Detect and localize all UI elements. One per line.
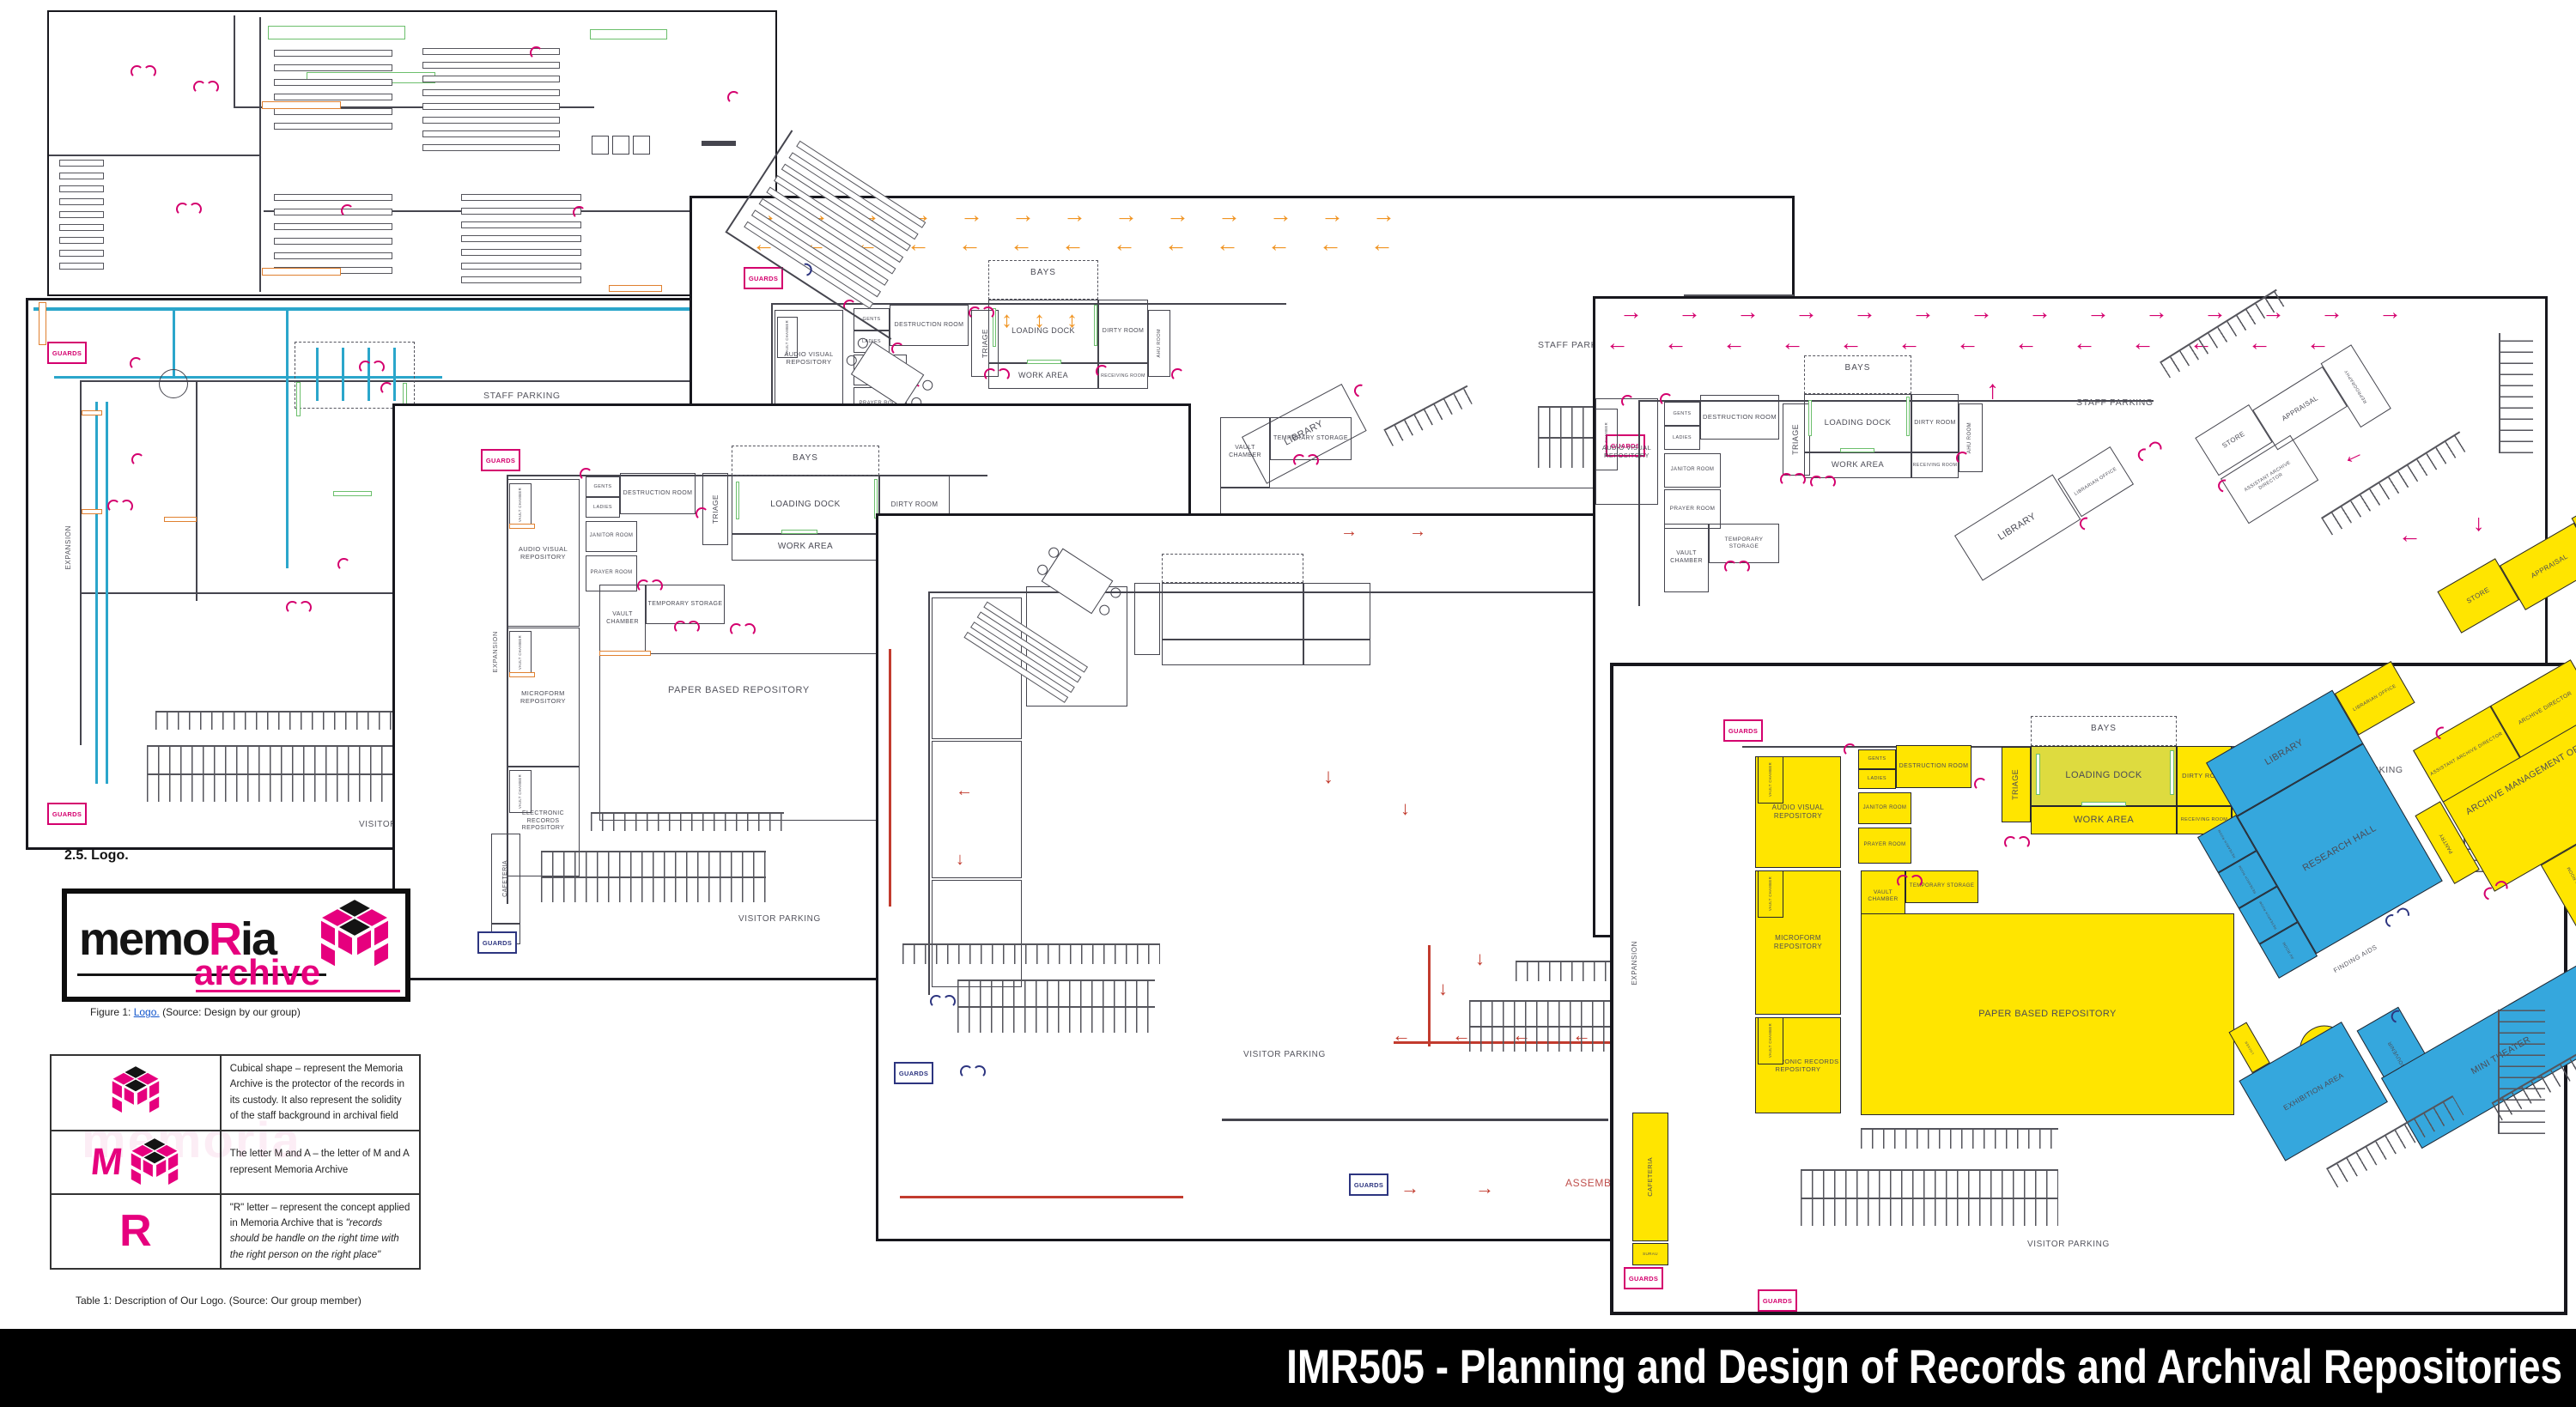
room-label: LIBRARIAN OFFICE bbox=[2074, 466, 2118, 497]
room-ahu-room: AHU ROOM bbox=[1148, 310, 1170, 377]
shelving-unit bbox=[461, 263, 581, 270]
room-label: AHU ROOM bbox=[1157, 329, 1163, 357]
shelving-unit bbox=[422, 117, 560, 124]
evacuation-arrow-icon: → bbox=[1372, 203, 1395, 227]
evacuation-arrow-icon: ← bbox=[1722, 331, 1746, 355]
parking-row bbox=[155, 711, 430, 730]
room-loading-dock: LOADING DOCK bbox=[1804, 394, 1911, 452]
door-icon bbox=[286, 601, 299, 614]
shelving-unit bbox=[59, 185, 104, 192]
wall-line bbox=[49, 155, 260, 156]
wall-line bbox=[106, 402, 108, 784]
room-label: DIRTY ROOM bbox=[891, 500, 939, 509]
dock-leveler bbox=[1808, 400, 1812, 436]
evacuation-arrow-icon: ← bbox=[1956, 331, 1979, 355]
room-label: SURAU bbox=[1643, 1252, 1658, 1257]
door-icon bbox=[131, 453, 144, 466]
evacuation-arrow-icon: → bbox=[1321, 203, 1344, 227]
text-expansion: EXPANSION bbox=[491, 631, 499, 673]
evacuation-arrow-icon: ← bbox=[1267, 233, 1291, 256]
evacuation-arrow-icon: → bbox=[1853, 300, 1876, 324]
room-label: APPRAISAL bbox=[2281, 394, 2320, 423]
room-janitor-room: JANITOR ROOM bbox=[1664, 453, 1721, 488]
evacuation-arrow-icon: → bbox=[1619, 300, 1643, 324]
door-icon bbox=[573, 206, 586, 219]
evacuation-arrow-icon: ← bbox=[956, 782, 973, 799]
door-icon bbox=[337, 558, 350, 571]
door-icon bbox=[930, 995, 943, 1008]
logo-archive-word: archive bbox=[194, 952, 320, 993]
room-label: PRAYER ROOM bbox=[1670, 506, 1716, 512]
ma-letters-icon: M bbox=[51, 1131, 221, 1194]
room-label: LIBRARY bbox=[1283, 419, 1326, 449]
door-icon bbox=[943, 995, 956, 1008]
shelving-unit bbox=[274, 50, 392, 57]
evacuation-arrow-icon: ↓ bbox=[956, 851, 964, 868]
room-label: VAULT CHAMBER bbox=[1768, 1023, 1772, 1058]
room-destruction-room: DESTRUCTION ROOM bbox=[1896, 745, 1971, 788]
room-label: ASSISTANT ARCHIVE DIRECTOR bbox=[2233, 453, 2307, 506]
room-label: TEMPORARY STORAGE bbox=[1710, 537, 1778, 550]
wall-line bbox=[928, 591, 930, 995]
door-icon bbox=[1171, 368, 1184, 381]
room-vault-chamber: VAULT CHAMBER bbox=[509, 483, 532, 526]
room-gents: GENTS bbox=[1664, 402, 1700, 426]
room-label: JANITOR ROOM bbox=[1671, 467, 1715, 474]
shelving-unit bbox=[274, 238, 392, 245]
room-label: VAULT CHAMBER bbox=[1604, 422, 1608, 457]
dock-leveler bbox=[736, 482, 739, 519]
room-gents: GENTS bbox=[586, 476, 620, 497]
room-unlabeled bbox=[1303, 583, 1370, 640]
table-caption: Table 1: Description of Our Logo. (Sourc… bbox=[76, 1295, 361, 1307]
room-cafeteria: CAFETERIA bbox=[1632, 1113, 1668, 1241]
dock-leveler bbox=[1094, 305, 1097, 346]
door-icon bbox=[727, 91, 740, 104]
room-surau: SURAU bbox=[1632, 1243, 1668, 1265]
wall-line bbox=[316, 348, 319, 401]
guards-post: GUARDS bbox=[894, 1062, 933, 1084]
room-label: DISCUSSION ROOM bbox=[2566, 865, 2576, 908]
room-unlabeled bbox=[932, 741, 1022, 878]
room-label: VAULT CHAMBER bbox=[600, 611, 645, 627]
dock-leveler bbox=[2036, 754, 2040, 795]
dock-leveler bbox=[333, 491, 372, 496]
door-icon bbox=[189, 203, 202, 215]
shelving-unit bbox=[59, 250, 104, 257]
room-label: VAULT CHAMBER bbox=[1768, 762, 1772, 797]
guards-post: GUARDS bbox=[1349, 1174, 1388, 1196]
door-icon bbox=[107, 500, 120, 512]
room-label: VAULT CHAMBER bbox=[1862, 889, 1905, 903]
wall-line bbox=[234, 15, 235, 106]
door-icon bbox=[1844, 743, 1856, 756]
evacuation-arrow-icon: → bbox=[1409, 523, 1426, 540]
evacuation-arrow-icon: ← bbox=[1319, 233, 1342, 256]
evacuation-arrow-icon: ↓ bbox=[2473, 512, 2485, 535]
text-visitor-parking: VISITOR PARKING bbox=[738, 914, 821, 924]
evacuation-arrow-icon: ↓ bbox=[1323, 767, 1334, 787]
room-label: JANITOR ROOM bbox=[590, 533, 634, 540]
door-icon bbox=[1352, 382, 1369, 399]
door-icon bbox=[674, 621, 687, 634]
table-row: R"R" letter – represent the concept appl… bbox=[51, 1194, 420, 1270]
parking-row bbox=[902, 943, 1160, 964]
room-destruction-room: DESTRUCTION ROOM bbox=[620, 473, 696, 514]
room-ladies: LADIES bbox=[1858, 769, 1896, 789]
cube-icon bbox=[51, 1055, 221, 1131]
shelving-unit bbox=[59, 237, 104, 244]
door-icon bbox=[2004, 836, 2017, 849]
room-label: REPROGRAPHY bbox=[2343, 368, 2368, 403]
evacuation-arrow-icon: → bbox=[2379, 300, 2402, 324]
room-label: VAULT CHAMBER bbox=[1768, 876, 1772, 911]
room-label: LIBRARY bbox=[2263, 737, 2306, 769]
chair-icon bbox=[1097, 603, 1112, 617]
room-work-area: WORK AREA bbox=[2031, 806, 2177, 834]
door-icon bbox=[131, 65, 143, 78]
text-finding-aids: FINDING AIDS bbox=[2332, 943, 2379, 974]
roller-shutter bbox=[39, 302, 46, 345]
evacuation-arrow-icon: → bbox=[1678, 300, 1701, 324]
wall-line bbox=[702, 141, 736, 146]
room-label: AUDIO VISUAL REPOSITORY bbox=[1756, 804, 1840, 821]
evacuation-arrow-icon: ← bbox=[1664, 331, 1687, 355]
wall-line bbox=[173, 309, 175, 378]
evacuation-arrow-icon: ← bbox=[1164, 233, 1188, 256]
shelving-unit bbox=[422, 62, 560, 69]
shelving-unit bbox=[422, 130, 560, 137]
section-heading: 2.5. Logo. bbox=[64, 848, 129, 864]
room-dirty-room: DIRTY ROOM bbox=[1098, 300, 1148, 363]
room-label: GENTS bbox=[1674, 411, 1692, 417]
sheet-zoned-floor-plan-color: GUARDSEXPANSIONAUDIO VISUAL REPOSITORYVA… bbox=[1610, 663, 2567, 1315]
bays-dashed-area: BAYS bbox=[2031, 716, 2177, 746]
room-temporary-storage: TEMPORARY STORAGE bbox=[1709, 524, 1779, 563]
door-icon bbox=[130, 357, 143, 370]
evacuation-arrow-icon: ← bbox=[2014, 331, 2038, 355]
door-icon bbox=[359, 361, 372, 373]
room-label: APPRAISAL bbox=[2530, 553, 2570, 581]
course-title: IMR505 - Planning and Design of Records … bbox=[1286, 1337, 2562, 1393]
shelving-unit bbox=[59, 160, 104, 167]
room-label: RESEARCH HALL bbox=[2300, 822, 2379, 874]
logo-link[interactable]: Logo. bbox=[134, 1006, 160, 1018]
parking-row bbox=[957, 979, 1155, 1033]
figure-caption: Figure 1: Logo. (Source: Design by our g… bbox=[90, 1006, 301, 1018]
evacuation-arrow-icon: → bbox=[960, 203, 983, 227]
room-label: LOADING DOCK bbox=[2065, 770, 2142, 782]
room-janitor-room: JANITOR ROOM bbox=[1858, 792, 1911, 824]
room-unlabeled bbox=[1303, 640, 1370, 665]
evacuation-arrow-icon: → bbox=[1340, 523, 1358, 540]
door-icon bbox=[143, 65, 156, 78]
evacuation-arrow-icon: → bbox=[2087, 300, 2110, 324]
shelving-unit bbox=[274, 108, 392, 115]
work-table bbox=[590, 29, 667, 39]
guards-post: GUARDS bbox=[1624, 1267, 1663, 1289]
room-label: LOCKER bbox=[2244, 1040, 2254, 1055]
dock-leveler bbox=[2081, 802, 2126, 806]
door-icon bbox=[1793, 473, 1806, 486]
room-label: DIRTY ROOM bbox=[1103, 328, 1144, 336]
evacuation-arrow-icon: ← bbox=[1606, 331, 1629, 355]
evacuation-arrow-icon: → bbox=[1911, 300, 1935, 324]
door-icon bbox=[193, 81, 206, 94]
evacuation-arrow-icon: ← bbox=[1781, 331, 1804, 355]
shelving-unit bbox=[59, 173, 104, 179]
room-label: STORE bbox=[2465, 585, 2491, 605]
cube-icon bbox=[318, 897, 392, 971]
guards-post: GUARDS bbox=[481, 449, 520, 471]
room-label: WORK AREA bbox=[778, 542, 833, 553]
m-letter: M bbox=[88, 1141, 125, 1184]
shelving-unit bbox=[461, 276, 581, 283]
shelving-unit bbox=[274, 194, 392, 201]
room-label: RESEARCH ROOM bbox=[2238, 864, 2257, 895]
room-unlabeled bbox=[592, 136, 609, 155]
door-icon bbox=[176, 203, 189, 215]
room-vault-chamber: VAULT CHAMBER bbox=[1758, 1017, 1783, 1064]
roller-shutter bbox=[262, 101, 341, 109]
bays-label: BAYS bbox=[1030, 268, 1056, 277]
work-table bbox=[268, 26, 405, 39]
room-receiving-room: RECEIVING ROOM bbox=[1911, 452, 1959, 478]
text-staff-parking: STAFF PARKING bbox=[483, 391, 561, 401]
parking-row bbox=[1861, 1128, 2058, 1149]
logo-description-text: The letter M and A – the letter of M and… bbox=[221, 1131, 420, 1194]
room-paper-based-repository: PAPER BASED REPOSITORY bbox=[1861, 913, 2234, 1115]
evacuation-arrow-icon: ← bbox=[1216, 233, 1239, 256]
roller-shutter bbox=[509, 672, 535, 677]
room-cafeteria: CAFETERIA bbox=[491, 834, 520, 924]
door-icon bbox=[730, 623, 743, 636]
shelving-unit bbox=[422, 144, 560, 151]
room-label: LOADING DOCK bbox=[1825, 418, 1892, 428]
door-icon bbox=[1780, 473, 1793, 486]
room-vault-chamber: VAULT CHAMBER bbox=[1664, 524, 1709, 592]
evacuation-arrow-icon: ↓ bbox=[1475, 949, 1485, 968]
dock-leveler bbox=[296, 382, 301, 416]
room-label: CAFETERIA bbox=[1646, 1157, 1654, 1197]
room-label: VAULT CHAMBER bbox=[518, 635, 522, 670]
door-icon bbox=[696, 507, 708, 520]
bays-dashed-area: BAYS bbox=[1804, 355, 1911, 394]
room-ladies: LADIES bbox=[1664, 426, 1700, 450]
door-icon bbox=[687, 621, 700, 634]
room-label: LIBRARY bbox=[1996, 512, 2038, 544]
room-vault-chamber: VAULT CHAMBER bbox=[599, 585, 646, 653]
shelving-unit bbox=[274, 252, 392, 259]
evacuation-arrow-icon: ↓ bbox=[1438, 979, 1448, 998]
room-label: DIRTY ROOM bbox=[1914, 420, 1955, 428]
roller-shutter bbox=[164, 517, 197, 522]
evacuation-arrow-icon: ← bbox=[2131, 331, 2154, 355]
room-vault-chamber: VAULT CHAMBER bbox=[509, 631, 532, 674]
evacuation-arrow-icon: → bbox=[1269, 203, 1292, 227]
evacuation-arrow-icon: ← bbox=[1061, 233, 1084, 256]
wall-line bbox=[286, 311, 289, 568]
room-label: PRAYER ROOM bbox=[1864, 842, 1906, 849]
shelving-unit bbox=[59, 263, 104, 270]
room-triage: TRIAGE bbox=[2002, 747, 2031, 822]
room-label: TEMPORARY STORAGE bbox=[648, 601, 723, 609]
parking-row bbox=[1801, 1169, 2058, 1226]
room-label: VAULT CHAMBER bbox=[518, 774, 522, 809]
r-letter-icon: R bbox=[51, 1194, 221, 1270]
evacuation-arrow-icon: → bbox=[1475, 1179, 1494, 1198]
wall-line bbox=[900, 1196, 1183, 1198]
logo-description-text: "R" letter – represent the concept appli… bbox=[221, 1194, 420, 1270]
bays-label: BAYS bbox=[2091, 724, 2117, 733]
door-icon bbox=[299, 601, 312, 614]
wall-line bbox=[393, 348, 396, 401]
room-library: LIBRARY bbox=[1242, 384, 1367, 484]
room-label: RECEIVING ROOM bbox=[1913, 463, 1958, 469]
logo-description-text: Cubical shape – represent the Memoria Ar… bbox=[221, 1055, 420, 1131]
parking-row bbox=[541, 851, 766, 902]
dock-leveler bbox=[1840, 448, 1874, 452]
shelving-unit bbox=[59, 224, 104, 231]
shelving-unit bbox=[274, 94, 392, 100]
room-label: MICROFORM REPOSITORY bbox=[1756, 934, 1840, 951]
room-label: AHU ROOM bbox=[1967, 422, 1974, 453]
room-vault-chamber: VAULT CHAMBER bbox=[1758, 870, 1783, 918]
shelving-unit bbox=[461, 249, 581, 256]
memoria-archive-logo: memoRia archive bbox=[62, 888, 410, 1002]
text-expansion: EXPANSION bbox=[1631, 941, 1638, 986]
room-label: LADIES bbox=[593, 505, 612, 511]
evacuation-arrow-icon: → bbox=[1218, 203, 1241, 227]
room-label: VAULT CHAMBER bbox=[1665, 550, 1708, 566]
evacuation-arrow-icon: → bbox=[1795, 300, 1818, 324]
guards-post: GUARDS bbox=[47, 342, 87, 364]
evacuation-arrow-icon: → bbox=[1166, 203, 1189, 227]
room-label: TRIAGE bbox=[711, 494, 720, 524]
roller-shutter bbox=[262, 268, 341, 276]
roller-shutter bbox=[82, 509, 102, 514]
text-visitor-parking: VISITOR PARKING bbox=[2027, 1240, 2110, 1249]
guards-post: GUARDS bbox=[477, 931, 517, 954]
door-icon bbox=[120, 500, 133, 512]
door-icon bbox=[1660, 393, 1673, 406]
parking-row bbox=[2499, 333, 2533, 453]
room-prayer-room: PRAYER ROOM bbox=[1858, 828, 1911, 864]
guards-post: GUARDS bbox=[1758, 1289, 1797, 1312]
bays-dashed-area bbox=[295, 342, 415, 409]
cube-icon bbox=[129, 1137, 180, 1188]
evacuation-arrow-icon: → bbox=[2028, 300, 2051, 324]
room-label: PRAYER ROOM bbox=[591, 570, 633, 577]
bays-label: BAYS bbox=[793, 453, 818, 463]
evacuation-arrow-icon: → bbox=[1063, 203, 1086, 227]
room-work-area: WORK AREA bbox=[732, 534, 879, 561]
room-library: LIBRARY bbox=[1954, 474, 2081, 580]
bays-dashed-area: BAYS bbox=[732, 446, 879, 476]
shelving-unit bbox=[274, 79, 392, 86]
door-icon bbox=[1621, 395, 1634, 408]
room-dirty-room: DIRTY ROOM bbox=[1911, 394, 1959, 452]
room-label: GENTS bbox=[594, 484, 612, 490]
room-label: RESEARCH ROOM bbox=[2258, 901, 2278, 931]
screenshot-canvas: GUARDSGUARDSEXPANSIONSTAFF PARKINGVISITO… bbox=[0, 0, 2576, 1407]
room-label: RESEARCH ROOM bbox=[2217, 829, 2237, 859]
parking-row bbox=[147, 745, 430, 802]
room-label: PAPER BASED REPOSITORY bbox=[1978, 1009, 2116, 1021]
sheet-furnishing-plan bbox=[47, 10, 777, 296]
wall-line bbox=[1222, 1119, 1608, 1121]
evacuation-arrow-icon: ← bbox=[1839, 331, 1862, 355]
room-vault-chamber: VAULT CHAMBER bbox=[1758, 756, 1783, 804]
room-label: LADIES bbox=[1673, 435, 1692, 441]
evacuation-arrow-icon: ← bbox=[1010, 233, 1033, 256]
logo-underline-pink bbox=[196, 990, 400, 992]
door-icon bbox=[1910, 875, 1923, 888]
shelving-unit bbox=[59, 211, 104, 218]
bays-label: BAYS bbox=[1845, 363, 1871, 373]
bays-dashed-area bbox=[1162, 554, 1303, 583]
evacuation-arrow-icon: → bbox=[1400, 1179, 1419, 1198]
door-icon bbox=[1823, 476, 1836, 488]
evacuation-arrow-icon: → bbox=[2203, 300, 2227, 324]
door-icon bbox=[960, 1065, 973, 1078]
shelving-unit bbox=[422, 103, 560, 110]
roller-shutter bbox=[599, 651, 651, 656]
door-icon bbox=[650, 579, 663, 592]
evacuation-arrow-icon: → bbox=[2145, 300, 2168, 324]
wall-line bbox=[95, 402, 98, 784]
shelving-unit bbox=[274, 123, 392, 130]
room-label: DESTRUCTION ROOM bbox=[1703, 413, 1777, 421]
room-label: DESTRUCTION ROOM bbox=[623, 490, 693, 498]
text-staff-parking: STAFF PARKING bbox=[2076, 397, 2154, 408]
room-label: VAULT CHAMBER bbox=[518, 488, 522, 522]
room-destruction-room: DESTRUCTION ROOM bbox=[1700, 395, 1779, 440]
door-icon bbox=[1724, 561, 1737, 573]
room-label: AV ROOM bbox=[2281, 941, 2295, 960]
wall-line bbox=[342, 348, 344, 401]
door-icon bbox=[530, 46, 543, 59]
roller-shutter bbox=[82, 410, 102, 415]
room-label: ARCHIVE DIRECTOR bbox=[2518, 690, 2573, 727]
room-loading-dock: LOADING DOCK bbox=[732, 476, 879, 534]
door-icon bbox=[1956, 452, 1969, 464]
door-icon bbox=[1897, 875, 1910, 888]
room-label: JANITOR ROOM bbox=[1863, 805, 1907, 812]
table-row: M The letter M and A – the letter of M a… bbox=[51, 1131, 420, 1194]
shelving-unit bbox=[461, 235, 581, 242]
room-vault-chamber: VAULT CHAMBER bbox=[1595, 409, 1618, 470]
room-label: LADIES bbox=[1868, 776, 1886, 782]
room-loading-dock: LOADING DOCK bbox=[2031, 746, 2177, 806]
room-label: TRIAGE bbox=[2011, 769, 2020, 800]
room-label: DESTRUCTION ROOM bbox=[1899, 763, 1969, 771]
guards-post: GUARDS bbox=[47, 803, 87, 825]
table-row: Cubical shape – represent the Memoria Ar… bbox=[51, 1055, 420, 1131]
room-label: CAFETERIA bbox=[502, 860, 510, 897]
room-ladies: LADIES bbox=[586, 497, 620, 518]
evacuation-arrow-icon: ← bbox=[1452, 1026, 1471, 1045]
shelving-unit bbox=[461, 208, 581, 215]
room-unlabeled bbox=[633, 136, 650, 155]
guards-post: GUARDS bbox=[1723, 719, 1763, 742]
wall-line bbox=[1428, 945, 1431, 1046]
parking-row bbox=[591, 812, 784, 831]
text-visitor-parking: VISITOR PARKING bbox=[1243, 1050, 1326, 1059]
roller-shutter bbox=[509, 524, 535, 529]
room-unlabeled bbox=[612, 136, 629, 155]
door-icon bbox=[1737, 561, 1750, 573]
